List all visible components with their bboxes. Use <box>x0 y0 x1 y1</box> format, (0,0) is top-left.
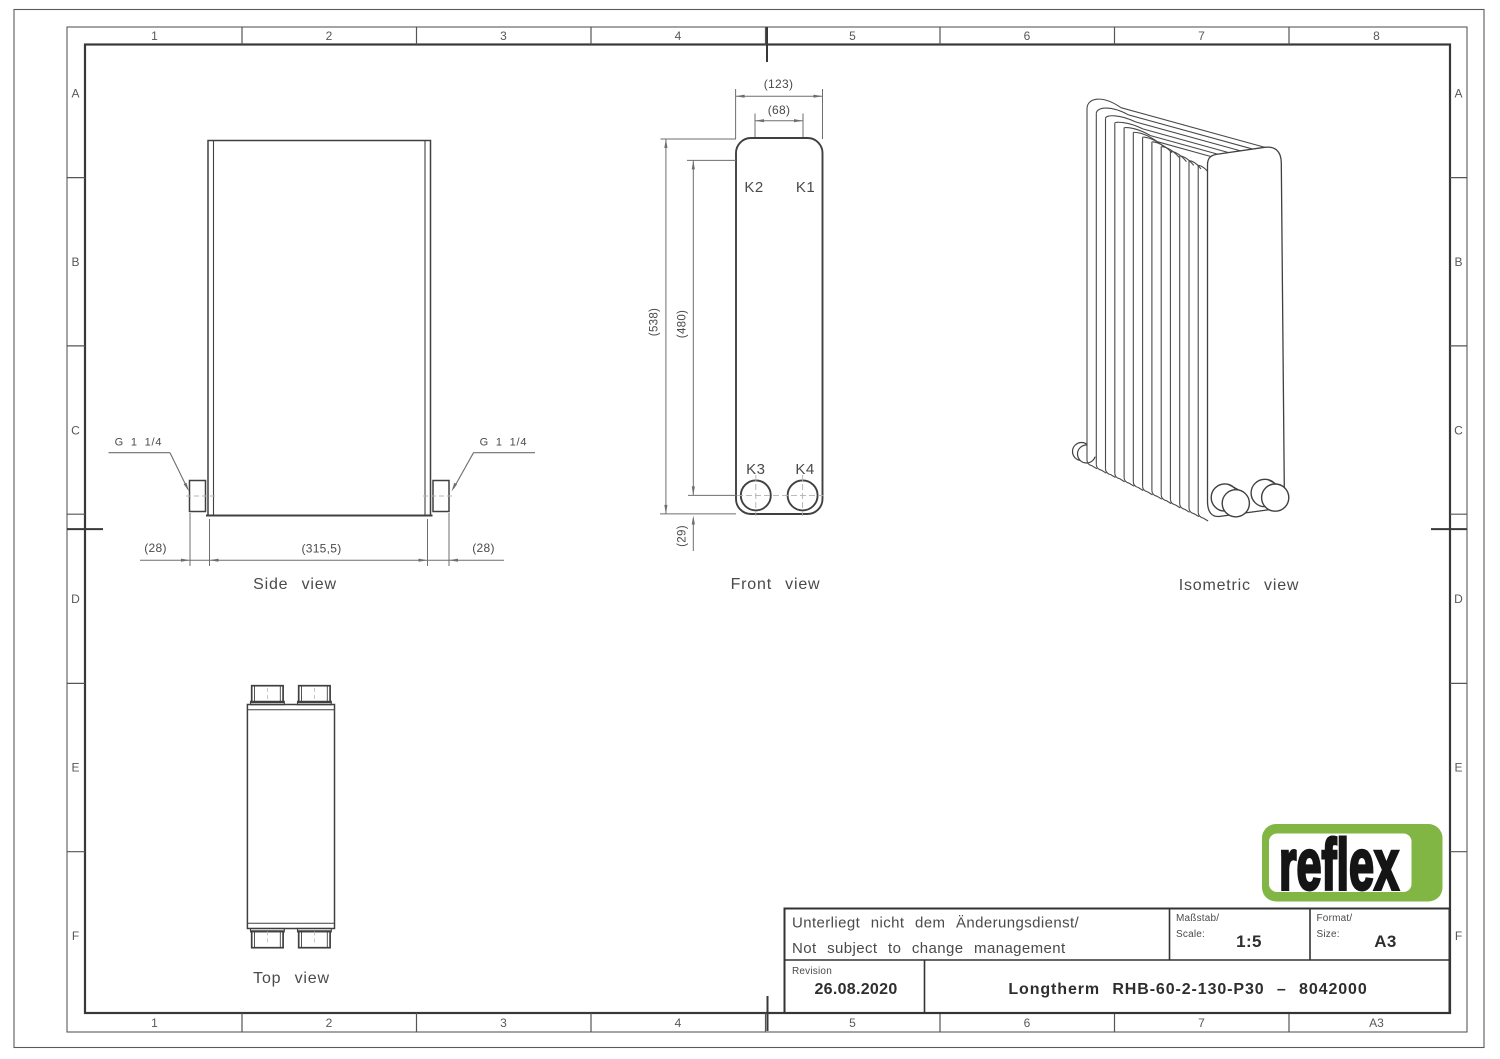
svg-text:Front view: Front view <box>731 576 821 593</box>
svg-text:Isometric view: Isometric view <box>1179 577 1300 594</box>
svg-text:(315,5): (315,5) <box>301 542 341 556</box>
svg-text:F: F <box>72 929 79 943</box>
svg-text:7: 7 <box>1198 29 1205 43</box>
svg-text:3: 3 <box>500 1016 507 1030</box>
svg-text:(538): (538) <box>649 308 661 336</box>
svg-text:K1: K1 <box>796 179 815 196</box>
svg-text:A: A <box>71 87 79 101</box>
svg-text:4: 4 <box>675 1016 682 1030</box>
svg-text:B: B <box>1454 255 1462 269</box>
svg-text:Size:: Size: <box>1317 929 1340 940</box>
svg-text:6: 6 <box>1024 29 1031 43</box>
svg-text:3: 3 <box>500 29 507 43</box>
svg-text:2: 2 <box>326 29 333 43</box>
svg-text:E: E <box>1454 761 1462 775</box>
svg-text:K4: K4 <box>795 461 814 478</box>
svg-text:4: 4 <box>675 29 682 43</box>
svg-text:2: 2 <box>326 1016 333 1030</box>
svg-text:F: F <box>1455 929 1462 943</box>
svg-text:Side view: Side view <box>253 576 337 593</box>
svg-text:Revision: Revision <box>792 966 832 977</box>
svg-text:A3: A3 <box>1374 932 1397 951</box>
svg-text:(68): (68) <box>768 103 791 117</box>
svg-text:Maßstab/: Maßstab/ <box>1176 913 1219 924</box>
svg-text:6: 6 <box>1024 1016 1031 1030</box>
svg-text:C: C <box>1454 424 1463 438</box>
svg-text:5: 5 <box>849 1016 856 1030</box>
svg-text:E: E <box>71 761 79 775</box>
svg-text:C: C <box>71 424 80 438</box>
svg-text:G 1 1/4: G 1 1/4 <box>115 437 163 449</box>
svg-text:26.08.2020: 26.08.2020 <box>814 981 897 998</box>
svg-text:(123): (123) <box>764 77 794 91</box>
svg-text:8: 8 <box>1373 29 1380 43</box>
svg-text:A: A <box>1454 87 1462 101</box>
svg-text:B: B <box>71 255 79 269</box>
svg-text:reflex: reflex <box>1279 826 1399 906</box>
svg-text:(29): (29) <box>677 525 689 547</box>
svg-text:(480): (480) <box>677 310 689 338</box>
svg-text:Scale:: Scale: <box>1176 929 1205 940</box>
svg-text:G 1 1/4: G 1 1/4 <box>480 437 528 449</box>
svg-text:5: 5 <box>849 29 856 43</box>
svg-text:Top view: Top view <box>253 970 330 987</box>
svg-text:7: 7 <box>1198 1016 1205 1030</box>
svg-text:(28): (28) <box>472 541 495 555</box>
svg-text:K2: K2 <box>744 179 763 196</box>
svg-text:Format/: Format/ <box>1317 913 1353 924</box>
svg-text:D: D <box>71 592 80 606</box>
svg-text:Unterliegt nicht dem Änderungs: Unterliegt nicht dem Änderungsdienst/ <box>792 915 1080 932</box>
svg-text:D: D <box>1454 592 1463 606</box>
svg-text:Not subject to change manageme: Not subject to change management <box>792 940 1066 957</box>
svg-text:(28): (28) <box>144 541 167 555</box>
svg-text:Longtherm RHB-60-2-130-P30 – 8: Longtherm RHB-60-2-130-P30 – 8042000 <box>1008 981 1367 998</box>
svg-text:1: 1 <box>151 1016 158 1030</box>
svg-text:1:5: 1:5 <box>1236 932 1262 951</box>
svg-text:1: 1 <box>151 29 158 43</box>
svg-text:A3: A3 <box>1369 1016 1384 1030</box>
